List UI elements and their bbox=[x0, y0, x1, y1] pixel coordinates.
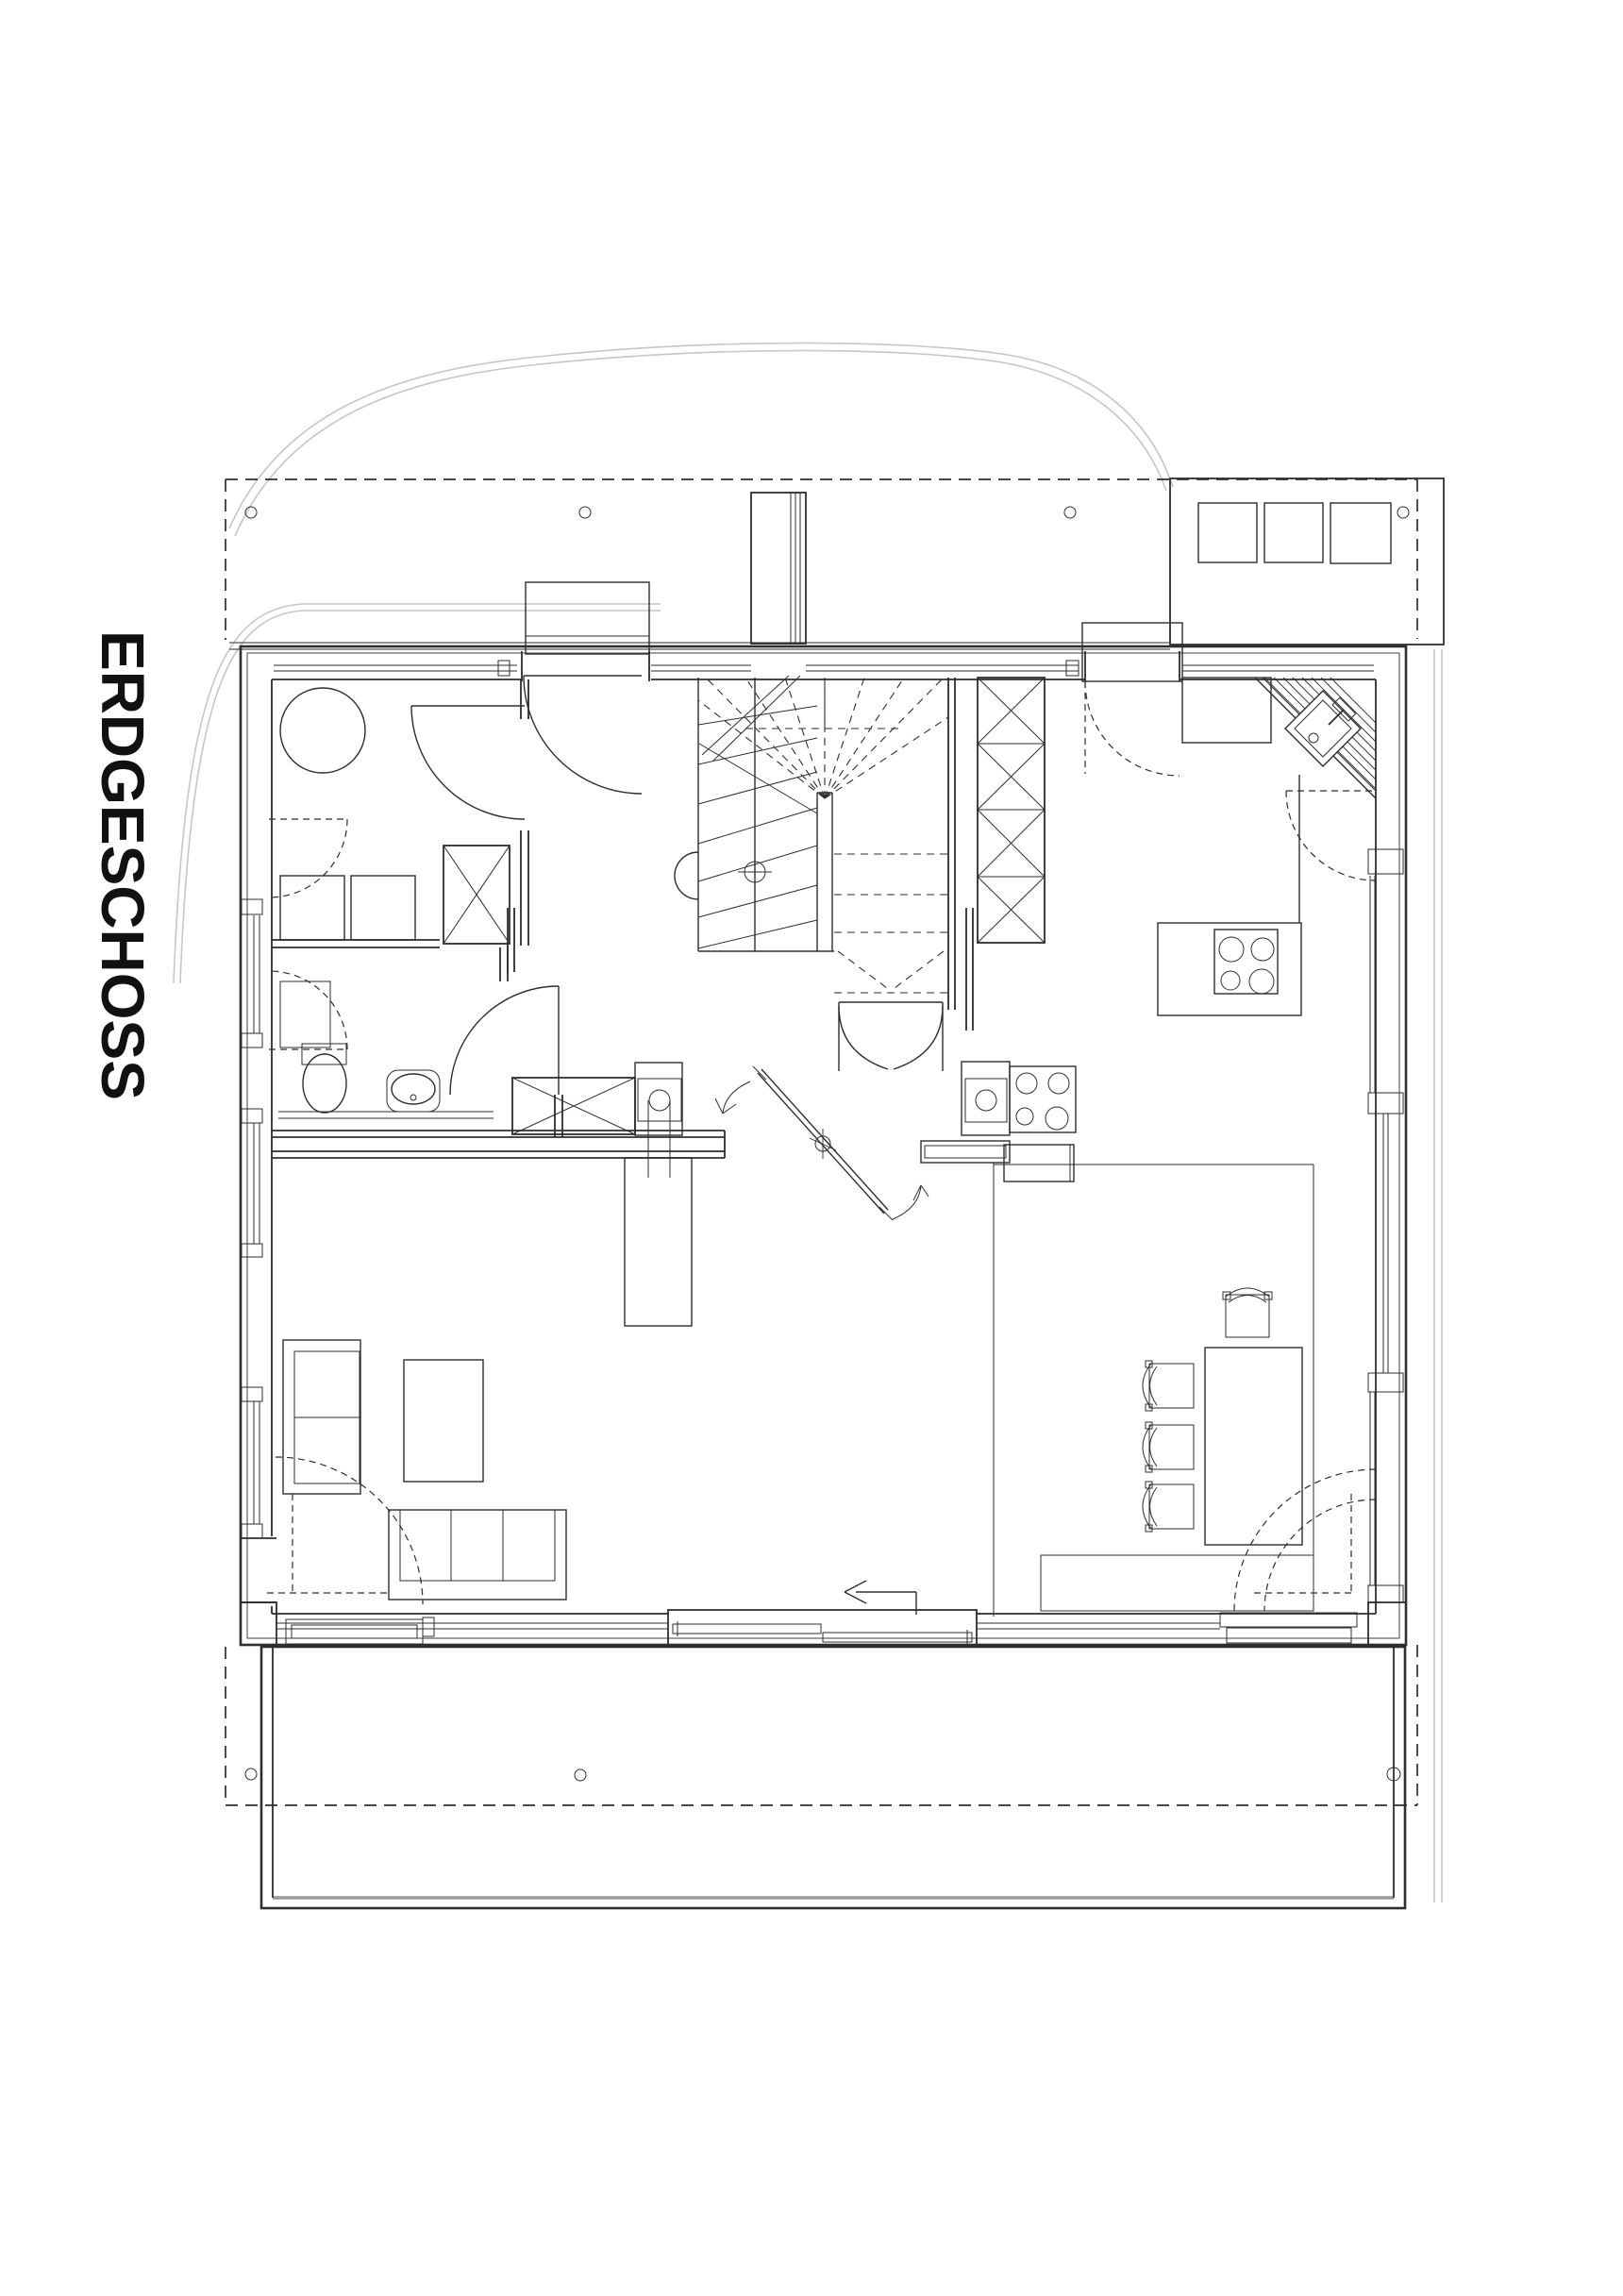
dining-area bbox=[1041, 1288, 1376, 1611]
utility-door bbox=[411, 706, 525, 819]
coffee-table bbox=[404, 1360, 483, 1482]
wardrobe-cabinet bbox=[512, 1078, 635, 1134]
swing-arrow-upper-icon bbox=[715, 1081, 750, 1114]
floorplan-page: ERDGESCHOSS bbox=[0, 0, 1623, 2296]
stair-column bbox=[738, 855, 772, 889]
window-band-north bbox=[274, 661, 1374, 676]
stair-double-door bbox=[839, 1002, 943, 1071]
washbasin bbox=[387, 1070, 440, 1112]
mullion bbox=[498, 661, 510, 676]
sink-basin bbox=[1285, 691, 1361, 766]
vent-shaft bbox=[443, 846, 510, 944]
upper-floor-overhang-outline bbox=[226, 479, 1417, 1805]
floor-plan-canvas: ERDGESCHOSS bbox=[0, 0, 1623, 2296]
terrace-door-swing-east bbox=[1234, 1469, 1376, 1611]
dining-table bbox=[1205, 1348, 1302, 1545]
kitchen-island bbox=[921, 1062, 1076, 1182]
skylight-1 bbox=[1198, 503, 1257, 562]
dryer bbox=[351, 876, 415, 940]
kitchen bbox=[921, 678, 1376, 1617]
chimney bbox=[751, 493, 806, 644]
handrail-bullnose bbox=[675, 852, 698, 899]
overhang-posts bbox=[245, 507, 1409, 1781]
skylight-2 bbox=[1264, 503, 1323, 562]
main-entrance-door bbox=[522, 582, 649, 794]
corner-sink-unit bbox=[1255, 678, 1376, 798]
stair-cut-line bbox=[702, 676, 800, 761]
island-sink bbox=[976, 1090, 996, 1111]
sofa bbox=[389, 1510, 566, 1600]
pivoting-partition bbox=[715, 1066, 929, 1220]
sliding-door-south bbox=[668, 1610, 977, 1646]
bar-counter bbox=[921, 1141, 1010, 1163]
window-bench bbox=[1041, 1555, 1313, 1611]
corridor-units bbox=[512, 1063, 692, 1326]
peninsula-counter bbox=[1158, 775, 1301, 1015]
mullion bbox=[423, 1617, 434, 1636]
chair-side-2 bbox=[1143, 1422, 1194, 1472]
living-area bbox=[241, 1340, 566, 1604]
skylight-3 bbox=[1330, 503, 1391, 563]
corridor-basin-unit bbox=[635, 1063, 682, 1178]
utility-room bbox=[269, 688, 525, 944]
floor-boundary bbox=[994, 1163, 1313, 1617]
interior-walls bbox=[272, 678, 973, 1158]
vanity-counter bbox=[278, 1112, 494, 1118]
toilet bbox=[302, 1044, 346, 1113]
shelf-unit bbox=[625, 1158, 692, 1326]
window-band-east bbox=[1368, 849, 1406, 1645]
upper-flight-dashed bbox=[698, 678, 948, 993]
site-canopy-curves bbox=[174, 344, 1442, 1903]
wc-room bbox=[269, 971, 559, 1118]
floor-title: ERDGESCHOSS bbox=[89, 630, 157, 1100]
winder-staircase bbox=[675, 676, 948, 1071]
terrace-slab bbox=[261, 1647, 1405, 1908]
swing-arrow-lower-icon bbox=[893, 1185, 929, 1219]
mullion bbox=[1066, 661, 1079, 676]
terrace-door-swing-west bbox=[267, 1457, 423, 1604]
round-fixture bbox=[280, 688, 365, 773]
chair-side-3 bbox=[1143, 1482, 1194, 1532]
counter bbox=[1182, 678, 1271, 743]
cistern-duct bbox=[280, 981, 330, 1047]
chair-head bbox=[1223, 1288, 1272, 1337]
storage-block bbox=[1170, 478, 1444, 645]
armchair bbox=[283, 1340, 360, 1494]
chair-side-1 bbox=[1143, 1361, 1194, 1411]
washer bbox=[280, 876, 344, 940]
tall-cabinet bbox=[978, 678, 1045, 943]
